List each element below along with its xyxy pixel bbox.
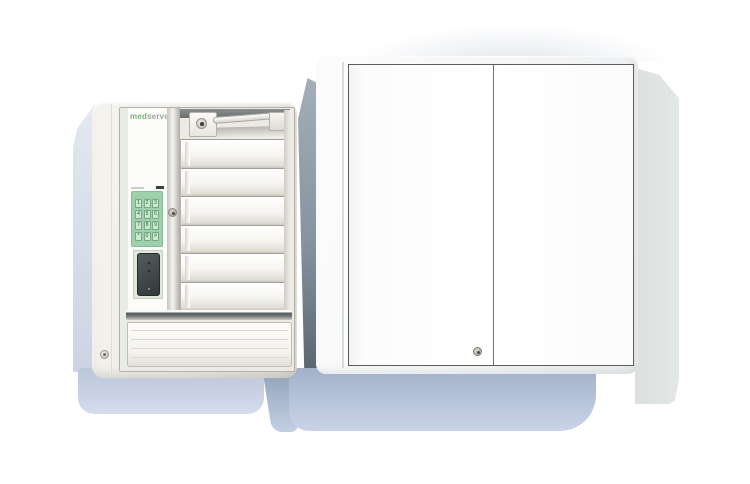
- cabinet-door-right: [493, 65, 633, 365]
- keypad-key-9: *: [135, 232, 142, 241]
- keypad-key-10: 0: [144, 232, 151, 241]
- drawer-tray-4: [181, 225, 288, 254]
- keypad-key-0: 1: [135, 199, 142, 208]
- bottom-drawer: [127, 322, 292, 367]
- keypad-header-logo-mark: [156, 186, 164, 189]
- drawer-tray-2: [181, 168, 288, 197]
- cabinet-drop-shadow: [289, 368, 596, 431]
- drawer-tray-1: [181, 139, 288, 168]
- cabinet-lock: [473, 347, 482, 356]
- door-keyhole-lock: [168, 208, 177, 217]
- top-tray-lock: [196, 118, 207, 129]
- cabinet-door-left: [349, 65, 493, 365]
- keypad: 123456789*0#: [131, 191, 163, 247]
- keypad-key-1: 2: [144, 199, 151, 208]
- keypad-key-3: 4: [135, 210, 142, 219]
- keypad-key-7: 8: [144, 221, 151, 230]
- medserve-logo: medserve: [130, 113, 169, 121]
- drawer-bay-right-wall: [284, 110, 291, 310]
- keypad-key-5: 6: [152, 210, 159, 219]
- drawer-tray-3: [181, 196, 288, 225]
- socket-hole-middle: [148, 270, 150, 272]
- keypad-header: [130, 184, 165, 191]
- product-render-scene: medserve 123456789*0#: [0, 0, 750, 484]
- cabinet-door-frame: [348, 64, 634, 366]
- bottom-drawer-ridge-2: [131, 339, 288, 340]
- drawer-tray-5: [181, 253, 288, 282]
- cabinet-right-wall-shadow: [635, 68, 679, 404]
- keypad-header-text-mark: [131, 187, 144, 189]
- logo-prefix: med: [130, 112, 147, 121]
- bottom-drawer-ridge-1: [131, 330, 288, 331]
- keypad-key-6: 7: [135, 221, 142, 230]
- cabinet-bezel-highlight: [344, 62, 346, 368]
- keypad-key-4: 5: [144, 210, 151, 219]
- ceiling-glow-shadow: [312, 0, 698, 62]
- socket-screw: [148, 288, 150, 290]
- corner-screw: [100, 350, 109, 359]
- keypad-key-2: 3: [152, 199, 159, 208]
- power-socket: [137, 253, 160, 296]
- keypad-key-11: #: [152, 232, 159, 241]
- bottom-drawer-ridge-3: [131, 348, 288, 349]
- bottom-drawer-ridge-4: [131, 357, 288, 358]
- lower-rail: [126, 310, 292, 320]
- drawer-stack: [180, 139, 288, 310]
- logo-suffix: serve: [147, 112, 169, 121]
- drawer-tray-6: [181, 282, 288, 311]
- keypad-key-8: 9: [152, 221, 159, 230]
- dispenser-side-fold: [110, 104, 112, 375]
- socket-hole-top: [148, 262, 150, 264]
